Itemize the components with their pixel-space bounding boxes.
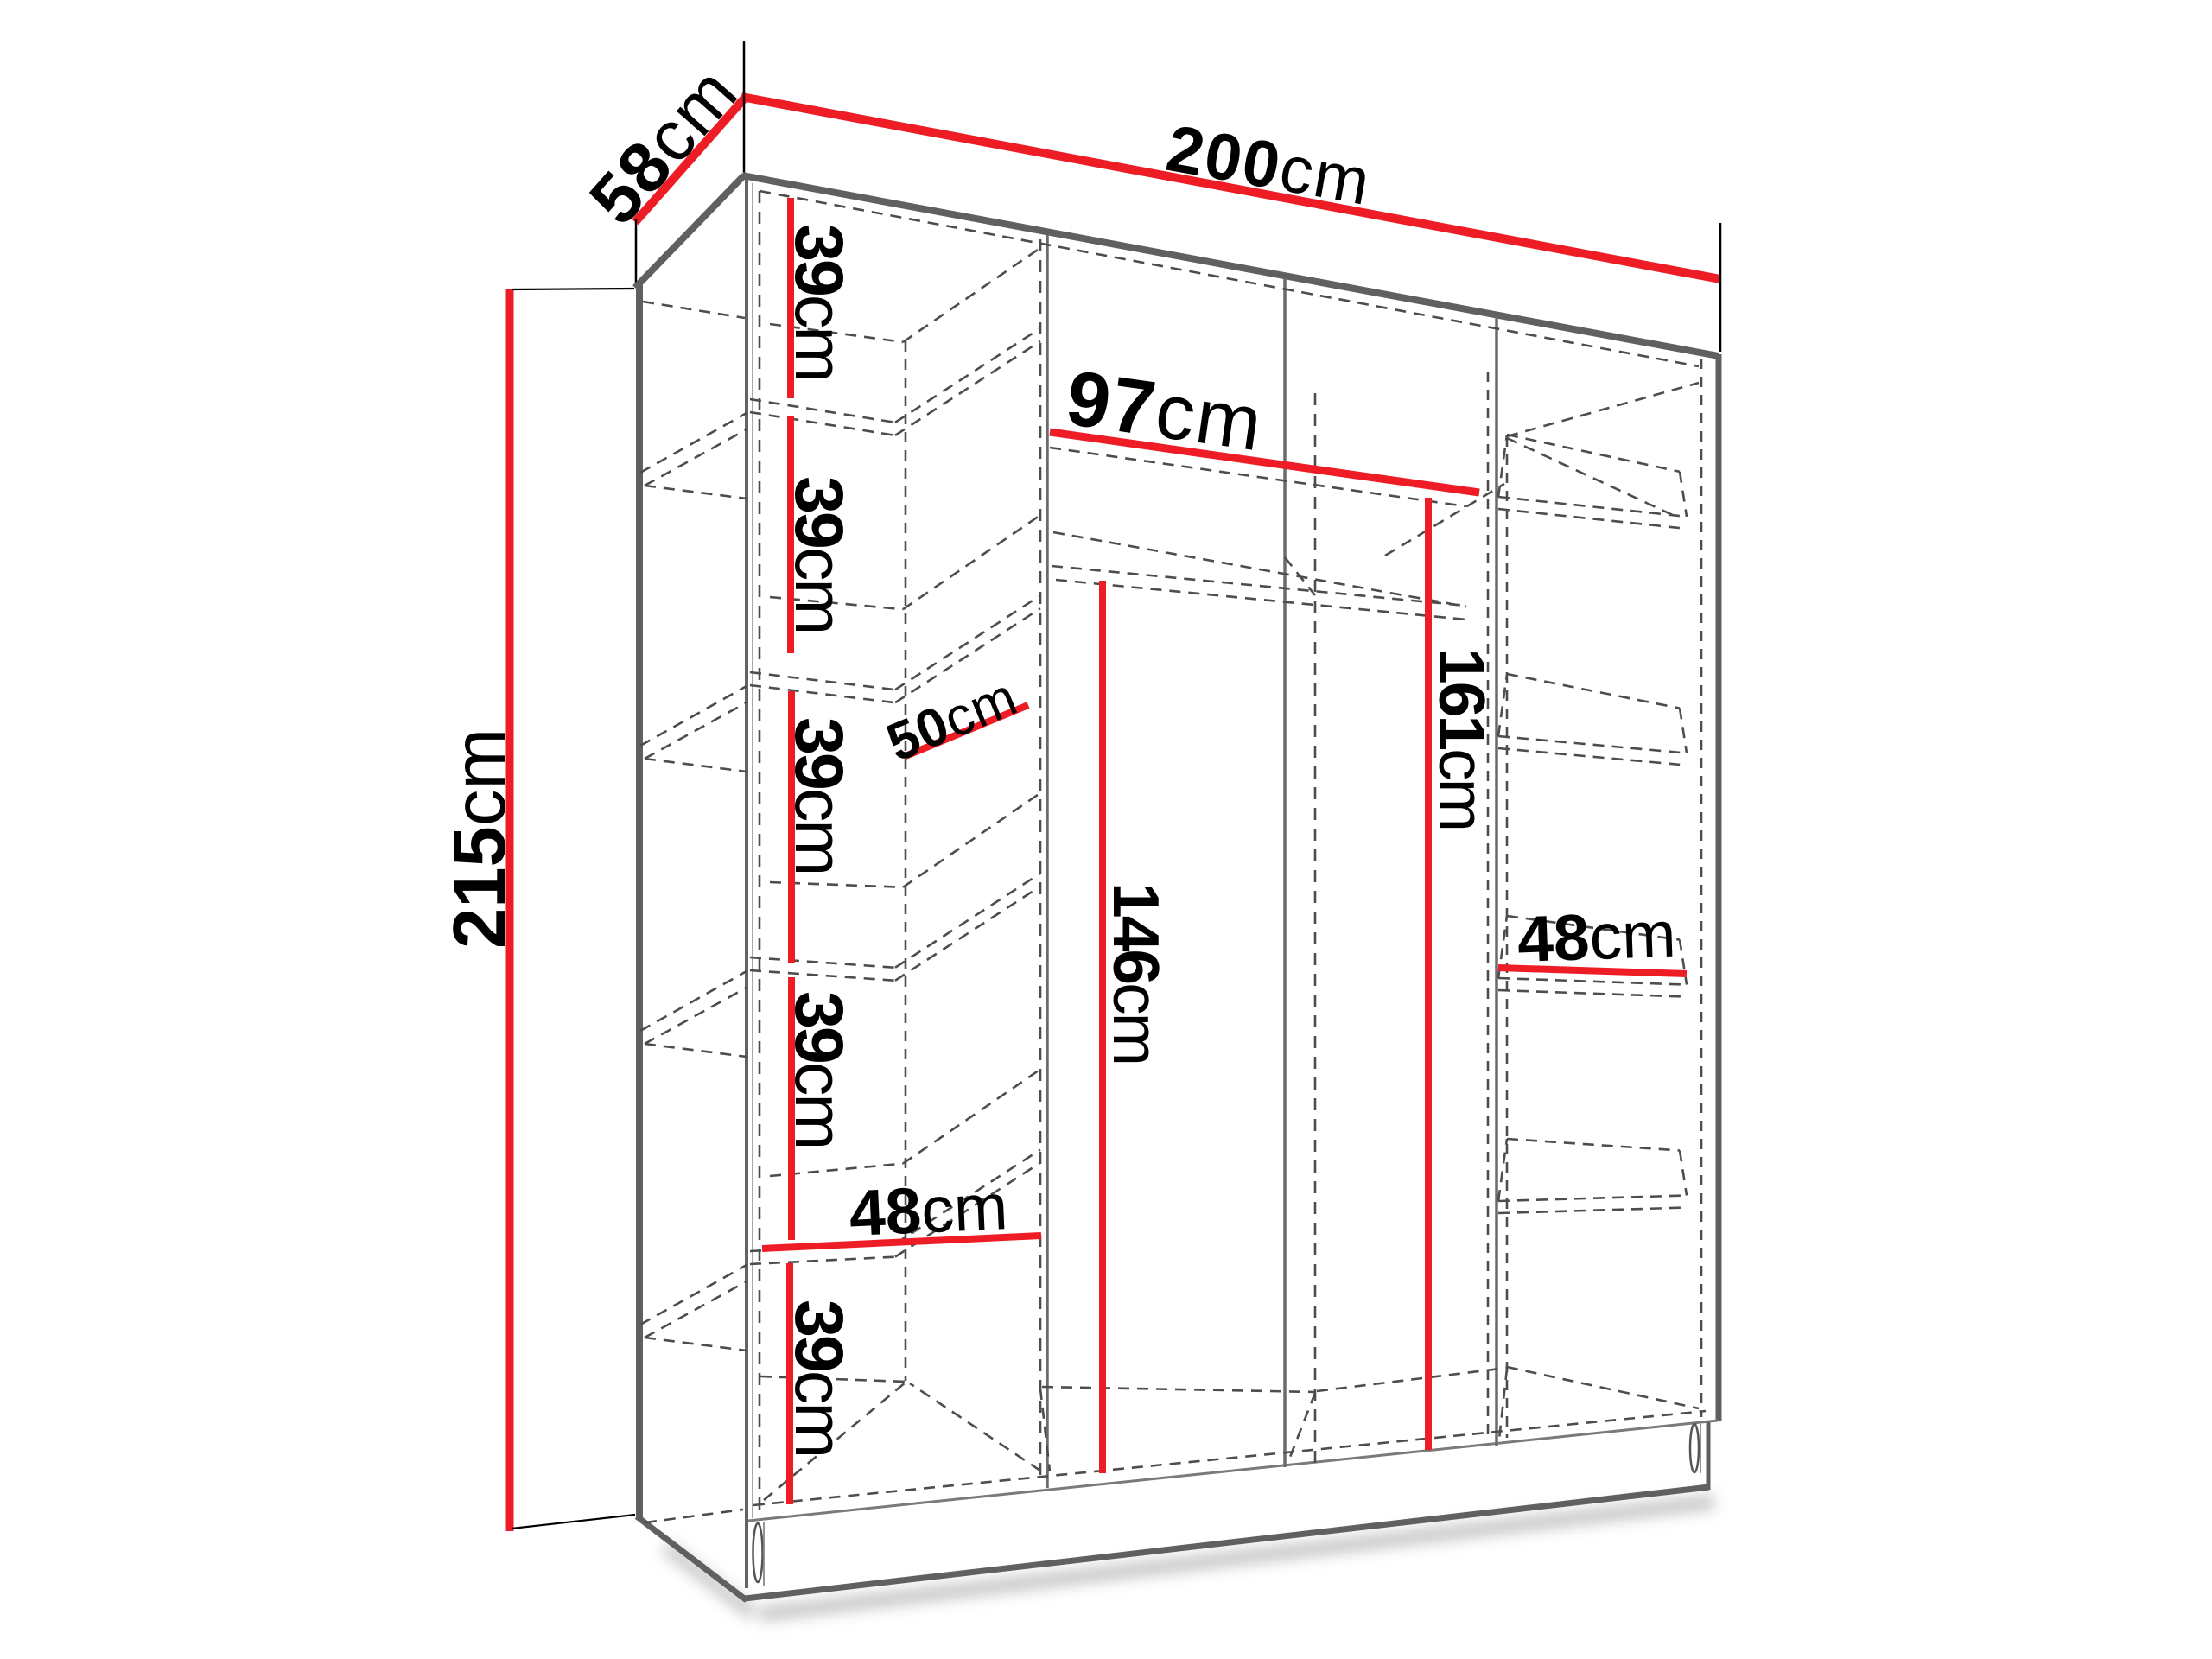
svg-text:39cm: 39cm — [781, 1300, 858, 1456]
svg-text:215cm: 215cm — [439, 728, 521, 949]
svg-text:146cm: 146cm — [1100, 882, 1173, 1064]
svg-text:39cm: 39cm — [781, 717, 858, 874]
svg-text:48cm: 48cm — [1516, 898, 1677, 976]
svg-text:161cm: 161cm — [1426, 648, 1498, 829]
svg-text:39cm: 39cm — [781, 224, 858, 380]
svg-text:48cm: 48cm — [848, 1170, 1009, 1249]
svg-text:39cm: 39cm — [781, 991, 858, 1147]
svg-text:39cm: 39cm — [781, 476, 858, 632]
